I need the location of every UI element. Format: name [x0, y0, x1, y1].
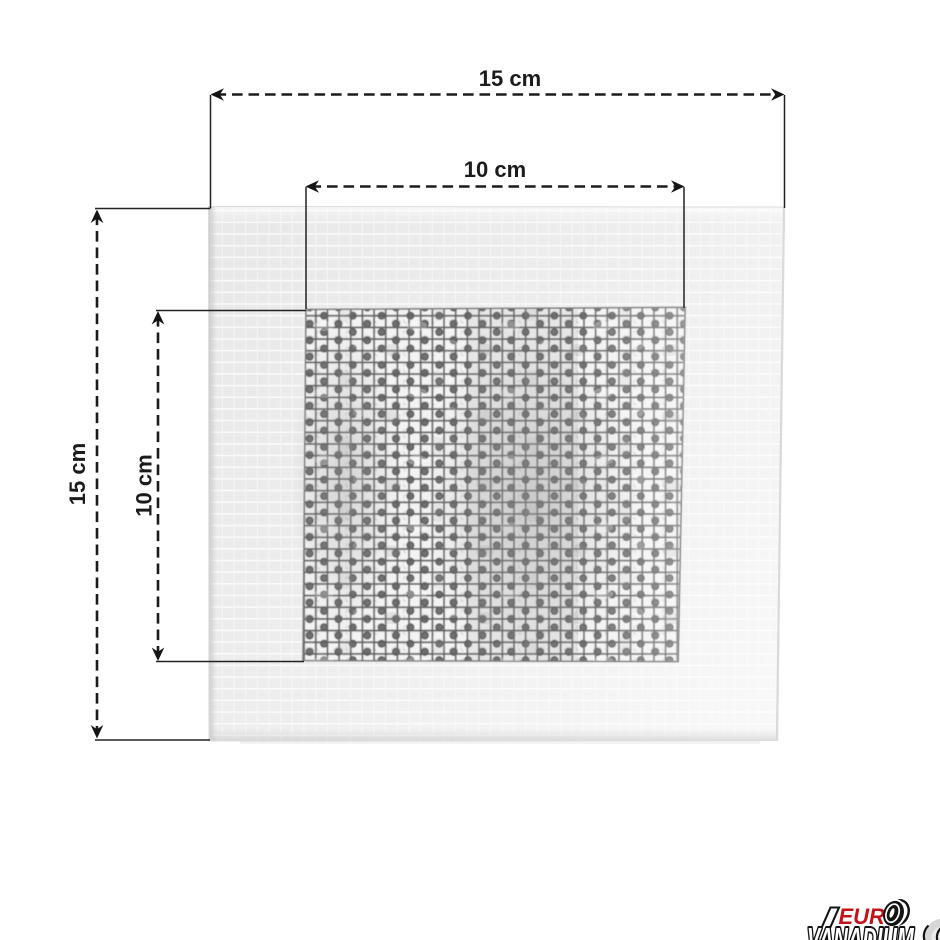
svg-text:VANADIUM: VANADIUM: [807, 923, 914, 940]
svg-text:10 cm: 10 cm: [132, 454, 157, 516]
svg-text:15 cm: 15 cm: [65, 443, 90, 505]
svg-text:10 cm: 10 cm: [464, 157, 526, 182]
svg-text:15 cm: 15 cm: [479, 66, 541, 91]
